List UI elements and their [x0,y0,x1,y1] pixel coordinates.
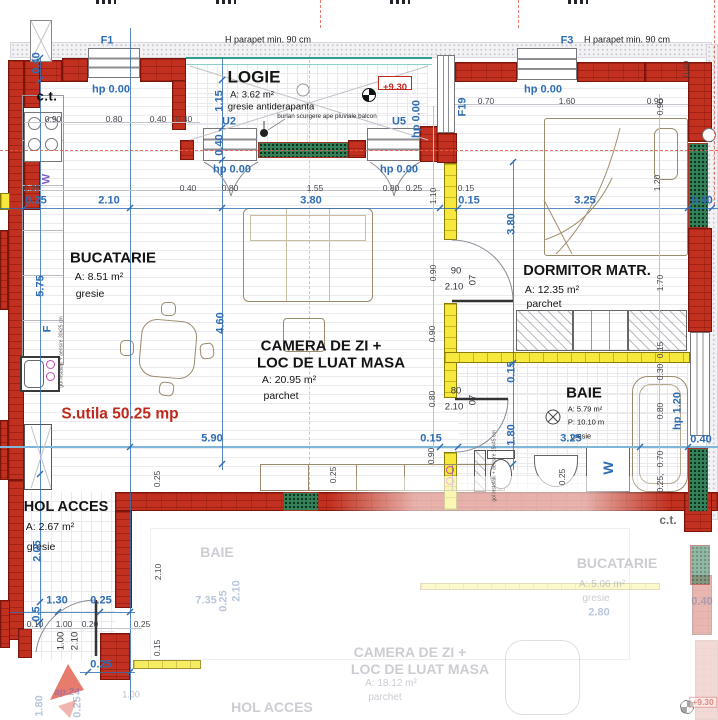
dim-label: 0.20 [82,620,99,629]
dim-label: 0.15 [507,361,518,382]
dim-label: 0.40 [150,115,167,124]
dim-label: 0.40 [682,61,691,78]
dim-label: 1.70 [656,275,665,292]
dim-label: 1.60 [559,97,576,106]
dim-label: 0.25 [73,696,84,717]
dim-label: 2.10 [70,632,80,651]
dim-label: 0.10 [27,620,44,629]
dim-label: hp 0.00 [412,100,423,138]
dim-label: 0.25 [25,196,46,207]
dim-label: 0.90 [429,265,438,282]
dim-label: 1.00 [56,620,73,629]
dim-label: 0.40 [215,134,226,155]
dim-label: hp 1.20 [673,392,684,430]
dim-label: 0.90 [656,99,665,116]
dim-label: 0.25, [656,474,665,493]
dim-label: hp 0.00 [213,165,251,176]
dim-label: hp 0.00 [524,85,562,96]
dim-label: 80 [451,386,462,396]
dim-label: W [601,461,615,474]
dim-label: 0.70 [478,97,495,106]
dim-label: 1.15 [215,90,226,111]
dim-label: BUCATARIE [577,556,657,570]
dim-label: 3.25 [574,196,595,207]
dim-label: 1.30 [46,596,67,607]
dim-label: 0.40 [691,597,712,608]
dim-label: 0.40 [32,52,43,73]
dim-label: 90 [451,266,462,276]
dim-label: 4.60 [216,312,227,333]
dim-label: HOL ACCES [231,700,313,714]
dim-label: 2.05 [33,540,44,561]
dim-label: 0.15 [458,184,475,193]
dim-label: U2 [222,117,236,128]
dim-label: 0.25 [90,660,111,671]
dim-label: 0.15 [458,196,479,207]
dim-label: 07 [468,395,478,406]
dim-label: 1.00 [56,632,66,651]
dim-label: 0.15 [656,342,665,359]
dim-label: hp 0.00 [92,85,130,96]
dim-label: CAMERA DE ZI + [354,645,467,659]
dim-label: 07 [468,275,478,286]
dim-label: 0.80 [428,391,437,408]
dim-label: F3 [561,36,574,47]
dim-label: 0.80 [222,184,239,193]
dim-label: gol instalatii + aerisire 15x45 cm [493,430,498,501]
dim-label: 3.80 [300,196,321,207]
dim-label: gresie [582,594,609,604]
dim-label: 0.30 [656,364,665,381]
dim-label: hp 0.00 [380,165,418,176]
dim-label: parchet [368,693,401,703]
dim-label: H parapet min. 90 cm [584,36,670,45]
dim-label: 2.10 [232,580,243,601]
dim-label: 1.80 [35,695,46,716]
dim-label: BAIE [200,545,233,559]
dim-label: 0.25 [153,471,162,488]
dim-label: 0.15 [420,434,441,445]
dim-label: 1.20 [653,175,662,192]
dim-label: 2.10 [98,196,119,207]
labels-layer: 0.252.103.800.153.250.405.900.153.250.40… [0,0,718,720]
dim-label: 1.00 [122,691,140,700]
dim-label: 2.80 [588,608,609,619]
dim-label: 0.90 [427,448,436,465]
dim-label: 0.80 [106,115,123,124]
dim-label: c.t. [659,514,676,526]
dim-label: 0.70 [656,451,665,468]
dim-label: 0.40 [690,435,711,446]
dim-label: gol instalatii + aerisire 30x25 cm [60,316,65,387]
dim-label: +9.30 [689,697,717,708]
dim-label: 0.25 [558,469,567,486]
dim-label: 0.15 [153,640,162,657]
dim-label: LOC DE LUAT MASA [351,662,489,676]
dim-label: 0.80 [383,184,400,193]
dim-label: 0.25 [24,184,41,193]
dim-label: 1.55 [307,184,324,193]
dim-label: 0.40 [691,196,712,207]
dim-label: 0.25 [406,184,423,193]
dim-label: U5 [392,117,406,128]
dim-label: 2.10 [154,564,163,581]
dim-label: F1 [101,36,114,47]
dim-label: 3.25 [560,434,581,445]
dim-label: 0.40 [180,184,197,193]
floor-plan: LOGIE A: 3.62 m² gresie antiderapanta BU… [0,0,718,720]
dim-label: A: 5.06 m² [579,580,625,590]
dim-label: 0.90 [428,326,437,343]
dim-label: 0.25 [329,467,338,484]
dim-label: 1.80 [507,424,518,445]
dim-label: H parapet min. 90 cm [225,36,311,45]
dim-label: 0.40 [176,115,193,124]
dim-label: 5.75 [36,275,47,296]
dim-label: 2.10 [445,402,464,412]
dim-label: 0.25 [90,596,111,607]
dim-label: 5.90 [201,434,222,445]
dim-label: 0.80 [656,403,665,420]
dim-label: 3.80 [507,213,518,234]
dim-label: 0.25 [219,590,230,611]
dim-label: F [43,326,54,333]
dim-label: 0.90 [45,115,62,124]
dim-label: 0.25 [134,620,151,629]
dim-label: 2.10 [445,282,464,292]
dim-label: F19 [458,98,469,117]
dim-label: 1.10 [429,188,438,205]
dim-label: burlan scurgere ape pluviale balcon [277,114,376,120]
dim-label: W [42,174,53,184]
dim-label: A: 18.12 m² [365,679,417,689]
dim-label: 7.35 [195,596,216,607]
